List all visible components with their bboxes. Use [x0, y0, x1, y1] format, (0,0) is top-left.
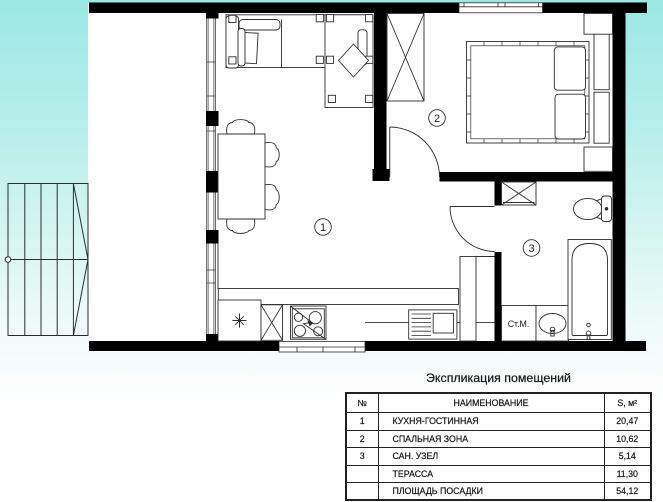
svg-text:1: 1	[320, 222, 326, 234]
svg-text:Ст.М.: Ст.М.	[508, 319, 530, 329]
svg-text:2: 2	[434, 113, 440, 125]
svg-text:3: 3	[528, 243, 534, 255]
